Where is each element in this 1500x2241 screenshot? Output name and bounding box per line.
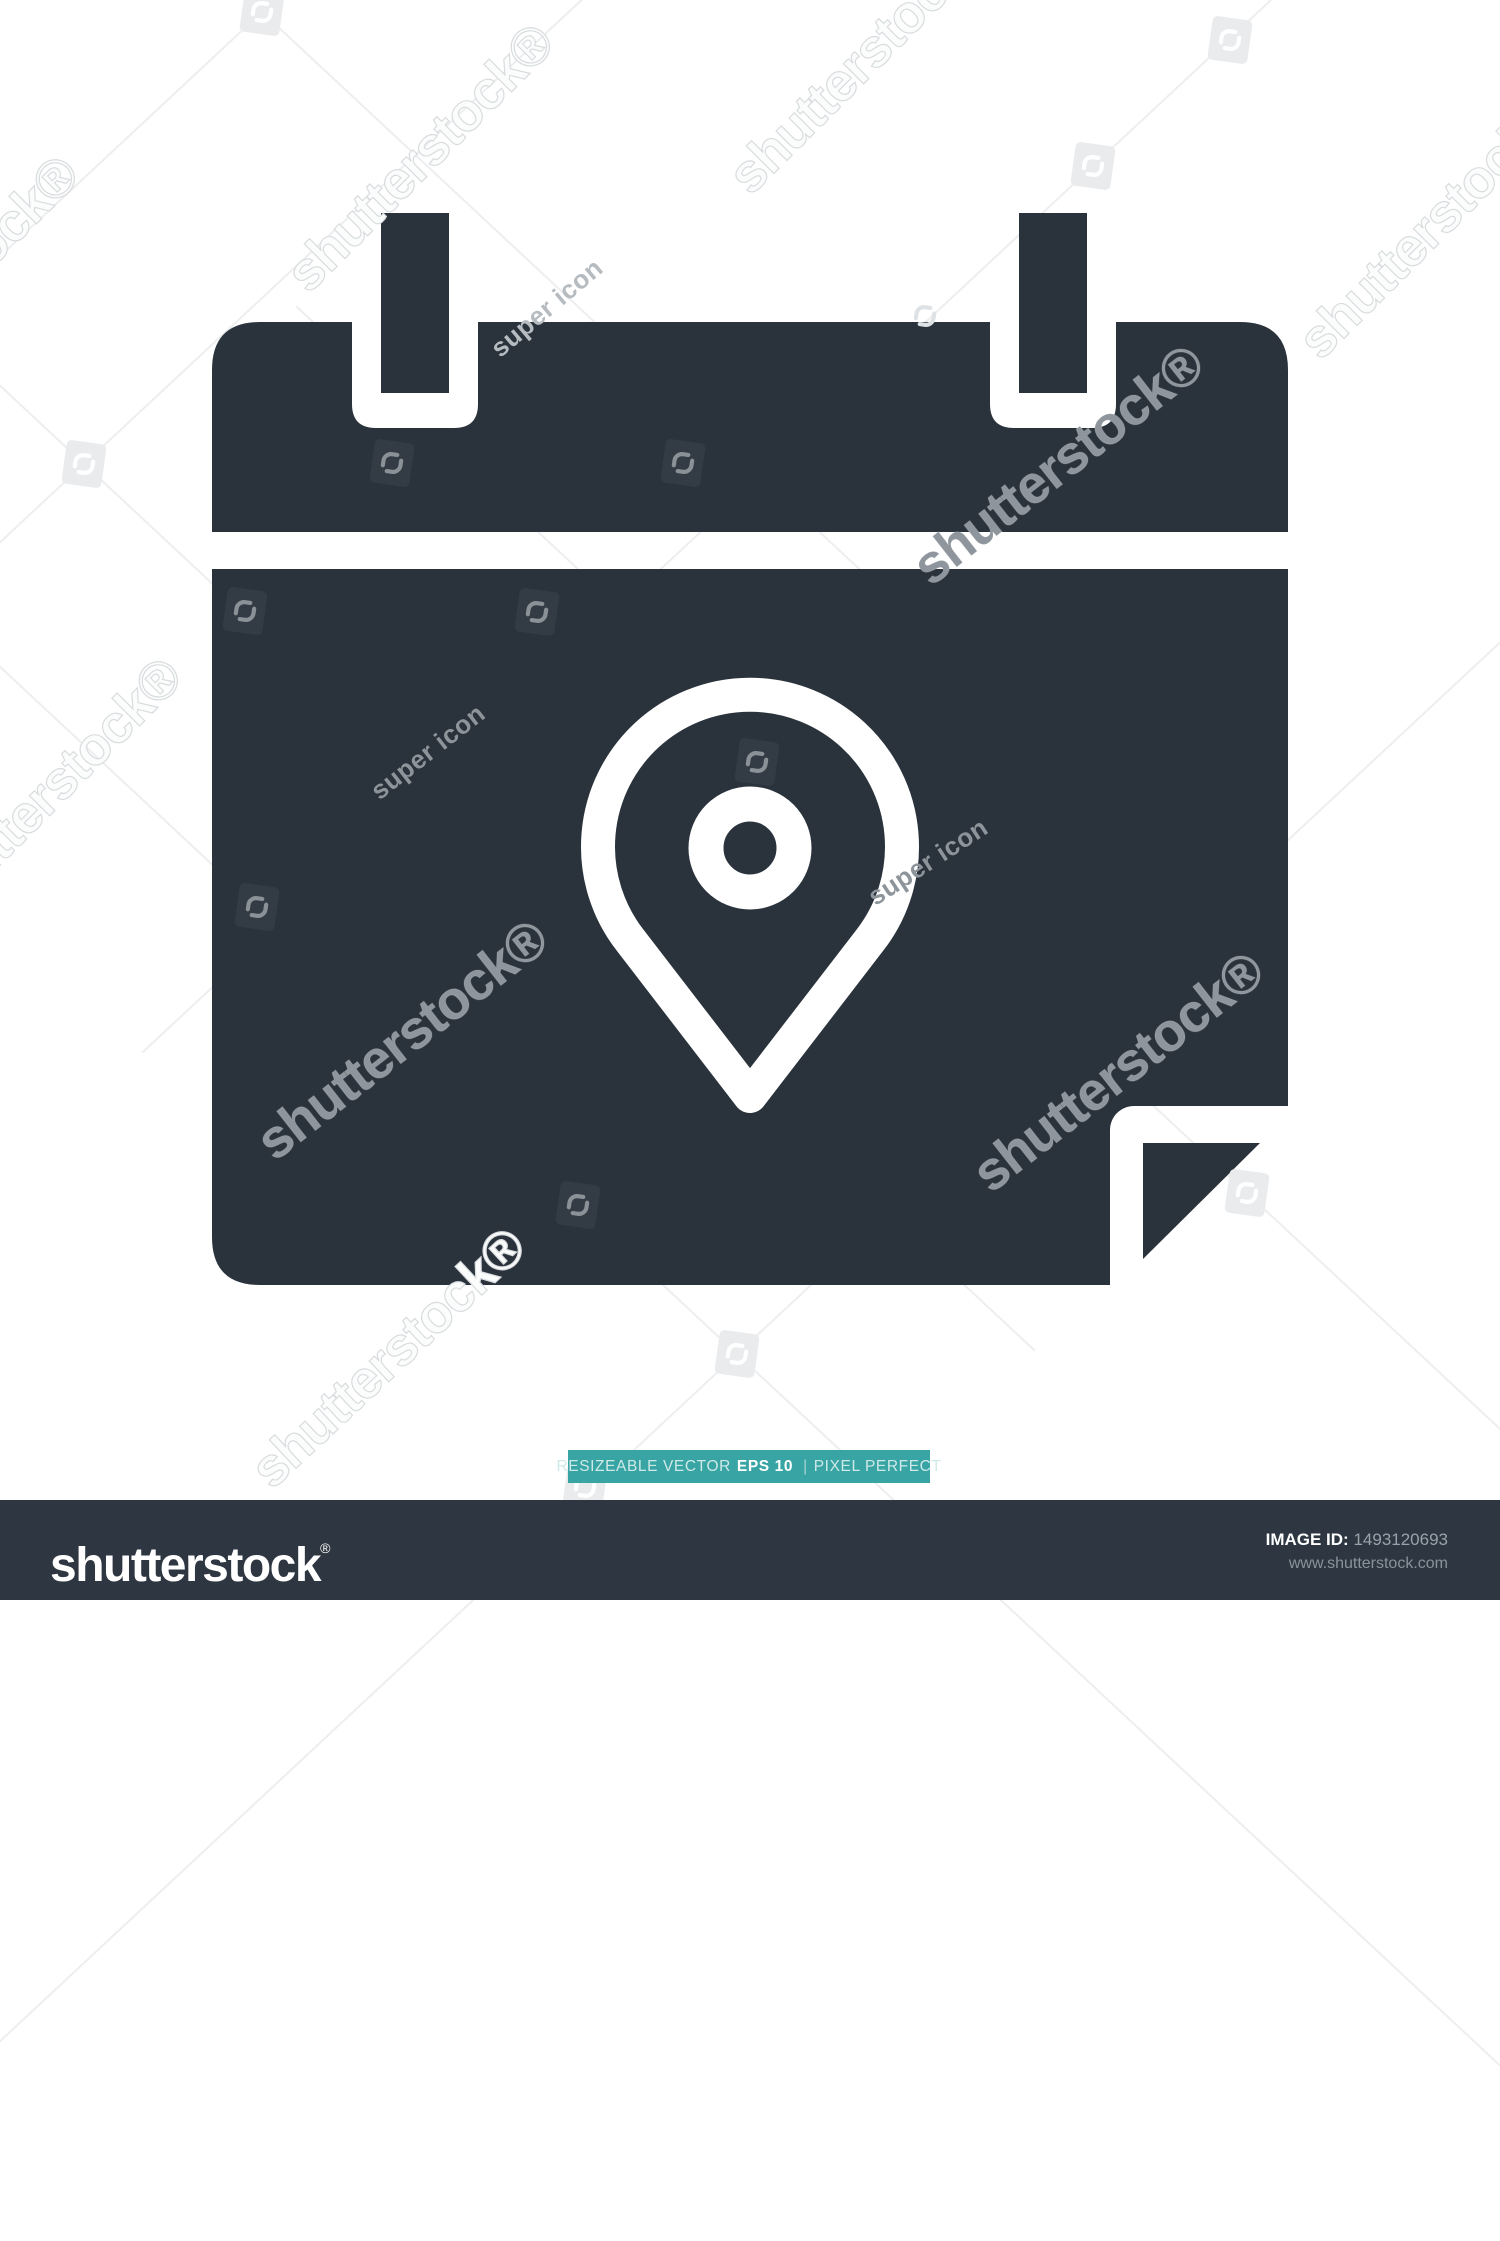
registered-mark: ® — [320, 1540, 330, 1556]
image-id-label: IMAGE ID: — [1266, 1530, 1349, 1549]
binder-tab-right — [1019, 213, 1087, 393]
banner-eps-label: EPS 10 — [737, 1458, 793, 1476]
shutterstock-footer-bar: shutterstock® IMAGE ID: 1493120693 www.s… — [0, 1500, 1500, 1600]
image-id-block: IMAGE ID: 1493120693 www.shutterstock.co… — [1266, 1528, 1448, 1576]
banner-suffix: PIXEL PERFECT — [814, 1458, 942, 1476]
banner-prefix: RESIZEABLE VECTOR — [556, 1458, 730, 1476]
shutterstock-logo-text: shutterstock — [50, 1539, 320, 1592]
stock-image-preview: RESIZEABLE VECTOR EPS 10 | PIXEL PERFECT… — [0, 0, 1500, 1600]
banner-separator: | — [803, 1458, 808, 1476]
vector-info-banner: RESIZEABLE VECTOR EPS 10 | PIXEL PERFECT — [568, 1450, 930, 1483]
shutterstock-logo: shutterstock® — [50, 1524, 330, 1590]
website-url: www.shutterstock.com — [1266, 1552, 1448, 1576]
calendar-body — [212, 569, 1288, 1285]
image-id-value: 1493120693 — [1353, 1530, 1448, 1549]
image-id-line: IMAGE ID: 1493120693 — [1266, 1528, 1448, 1552]
folded-corner — [1143, 1143, 1260, 1259]
calendar-location-icon — [0, 0, 1500, 1600]
binder-tab-left — [381, 213, 449, 393]
